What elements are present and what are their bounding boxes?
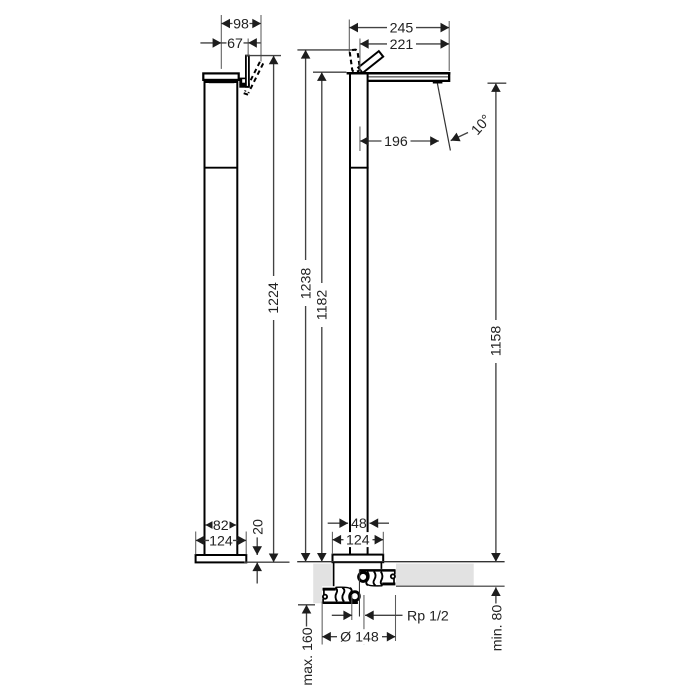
svg-text:1182: 1182 xyxy=(315,290,331,321)
svg-text:Rp 1/2: Rp 1/2 xyxy=(407,608,449,624)
svg-text:48: 48 xyxy=(351,516,367,532)
svg-text:1238: 1238 xyxy=(298,268,314,300)
svg-text:20: 20 xyxy=(250,519,266,535)
svg-text:67: 67 xyxy=(227,36,243,52)
svg-text:98: 98 xyxy=(233,17,249,33)
svg-text:124: 124 xyxy=(209,533,233,549)
svg-text:124: 124 xyxy=(346,533,370,549)
svg-text:245: 245 xyxy=(390,21,414,37)
svg-text:221: 221 xyxy=(390,37,414,53)
svg-text:196: 196 xyxy=(384,134,408,150)
svg-text:1224: 1224 xyxy=(266,282,282,314)
svg-text:min. 80: min. 80 xyxy=(489,605,505,652)
svg-text:1158: 1158 xyxy=(489,326,505,357)
svg-text:Ø 148: Ø 148 xyxy=(340,630,379,646)
svg-text:82: 82 xyxy=(213,518,229,534)
svg-text:max. 160: max. 160 xyxy=(300,627,316,685)
